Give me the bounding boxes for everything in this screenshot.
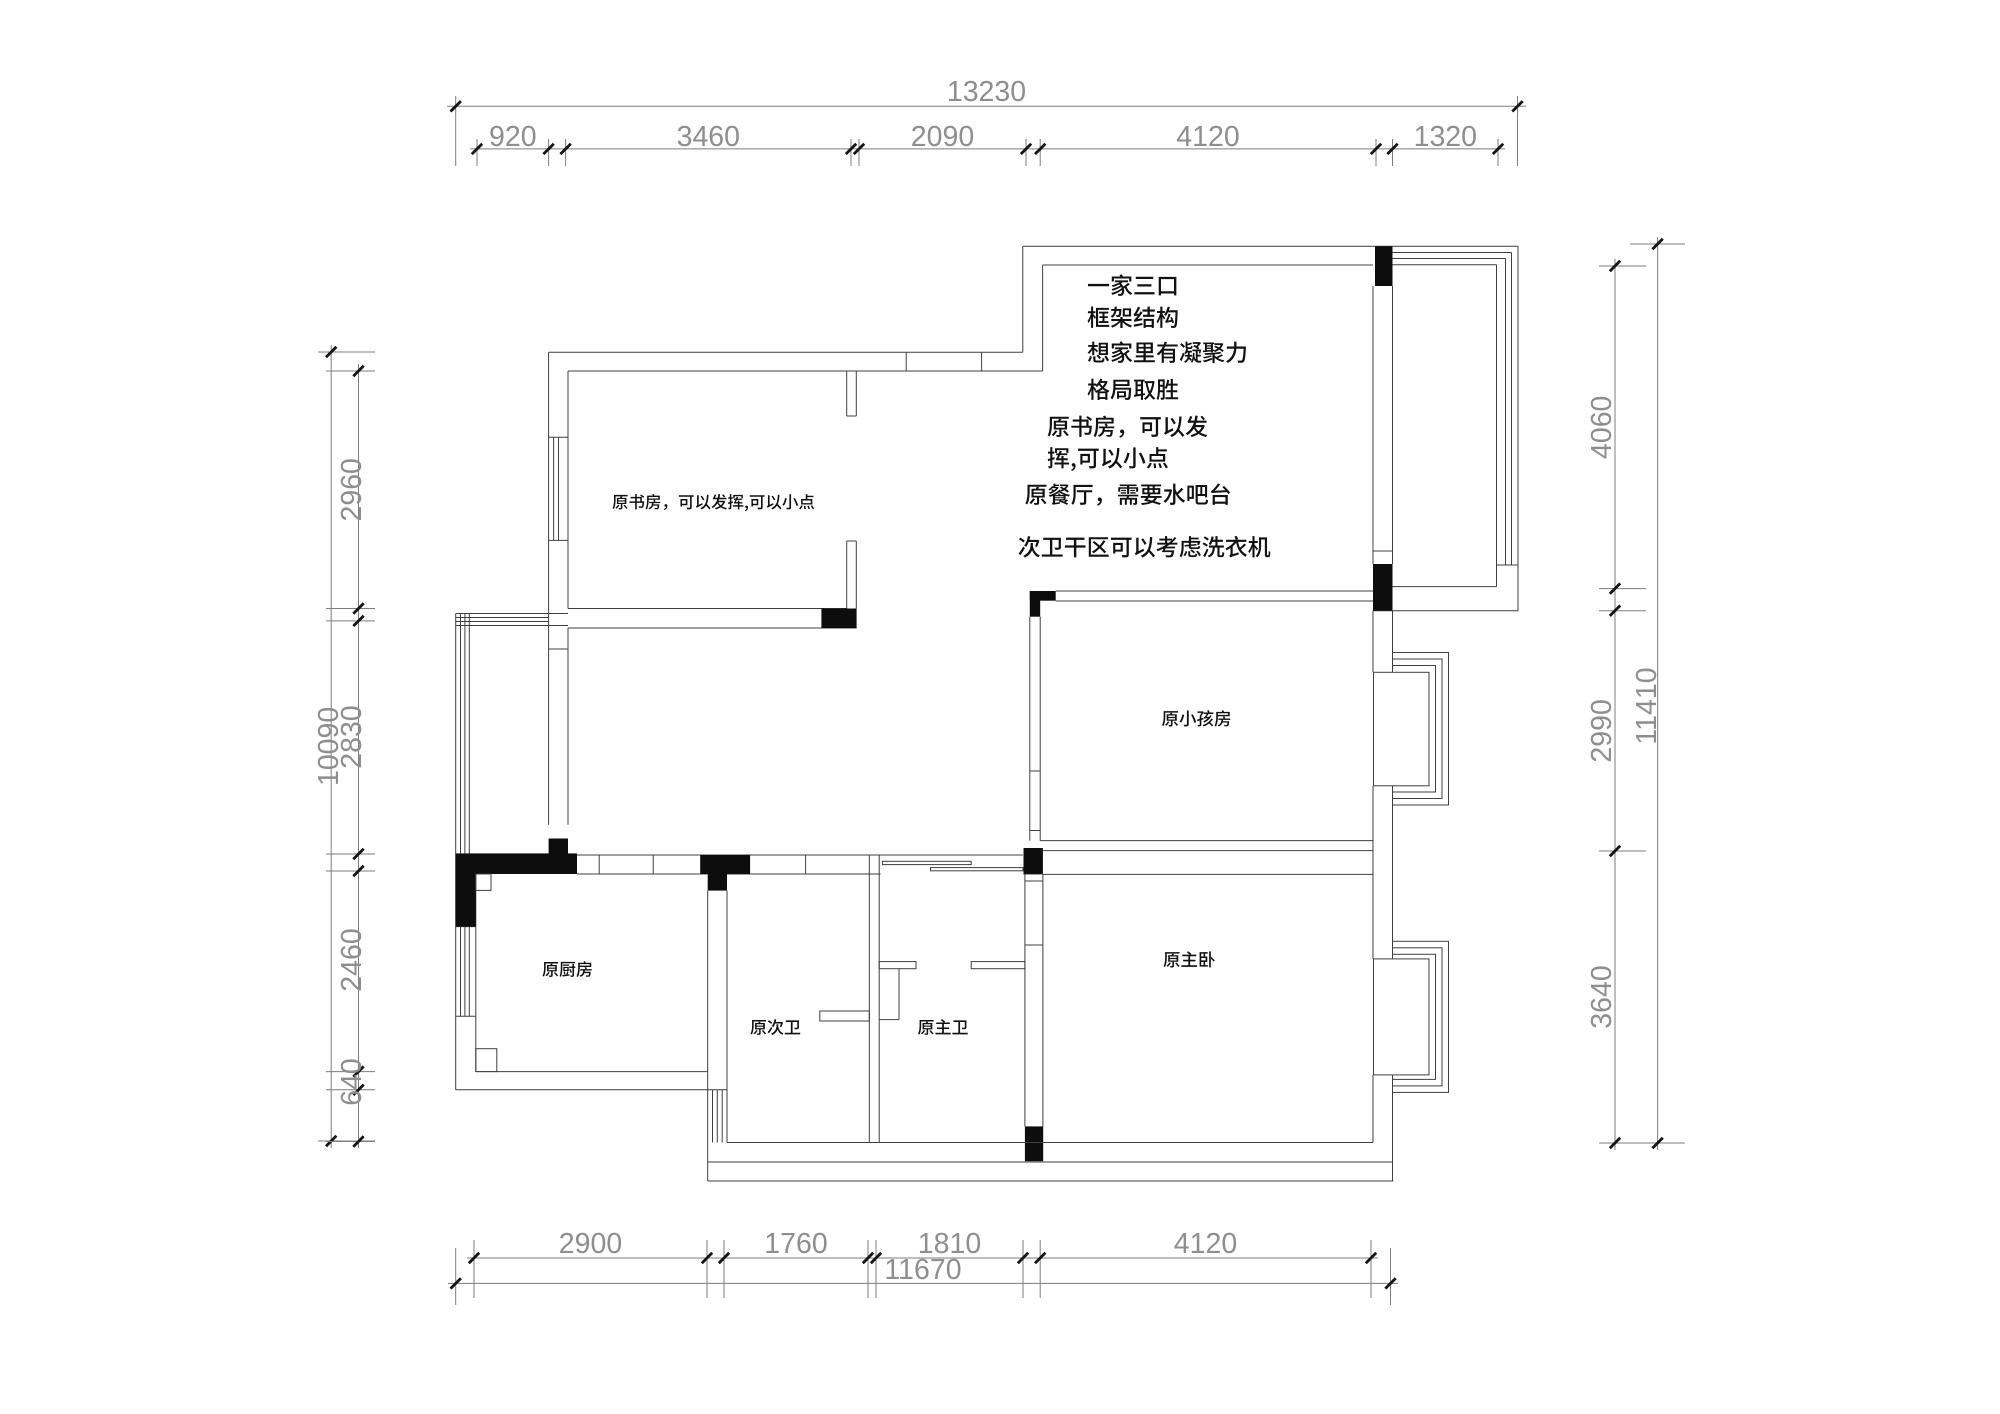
- svg-text:1760: 1760: [764, 1228, 827, 1260]
- svg-text:4120: 4120: [1176, 121, 1239, 153]
- svg-text:4060: 4060: [1586, 396, 1618, 459]
- svg-text:3640: 3640: [1586, 965, 1618, 1028]
- svg-text:2960: 2960: [336, 458, 368, 521]
- svg-text:2900: 2900: [559, 1228, 622, 1260]
- svg-text:2090: 2090: [911, 121, 974, 153]
- svg-text:11670: 11670: [884, 1254, 961, 1286]
- svg-text:2990: 2990: [1586, 699, 1618, 762]
- svg-text:920: 920: [489, 121, 537, 153]
- svg-text:1320: 1320: [1414, 121, 1477, 153]
- svg-text:2460: 2460: [336, 928, 368, 991]
- svg-text:11410: 11410: [1631, 667, 1663, 744]
- svg-text:3460: 3460: [677, 121, 740, 153]
- svg-text:4120: 4120: [1174, 1228, 1237, 1260]
- svg-text:2830: 2830: [336, 705, 368, 768]
- svg-text:640: 640: [336, 1058, 368, 1106]
- svg-text:13230: 13230: [947, 76, 1026, 108]
